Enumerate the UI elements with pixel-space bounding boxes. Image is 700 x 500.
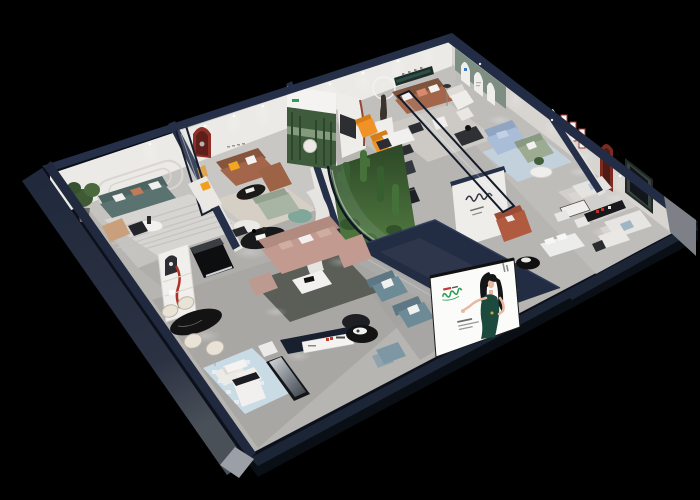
blue-logo-mark	[464, 68, 467, 71]
poster-ornament	[304, 140, 317, 153]
black-round-tray-table	[346, 325, 378, 343]
niche-sculpture	[200, 142, 205, 147]
showroom-render: Night-time 3D isometric cutaway render o…	[0, 0, 700, 500]
isometric-showroom	[0, 0, 700, 500]
black-pedestal-table	[516, 257, 540, 270]
sphere-lamp	[465, 125, 471, 131]
red-arch-niche	[193, 127, 211, 158]
poster-logo	[292, 99, 299, 102]
vase	[147, 216, 151, 224]
